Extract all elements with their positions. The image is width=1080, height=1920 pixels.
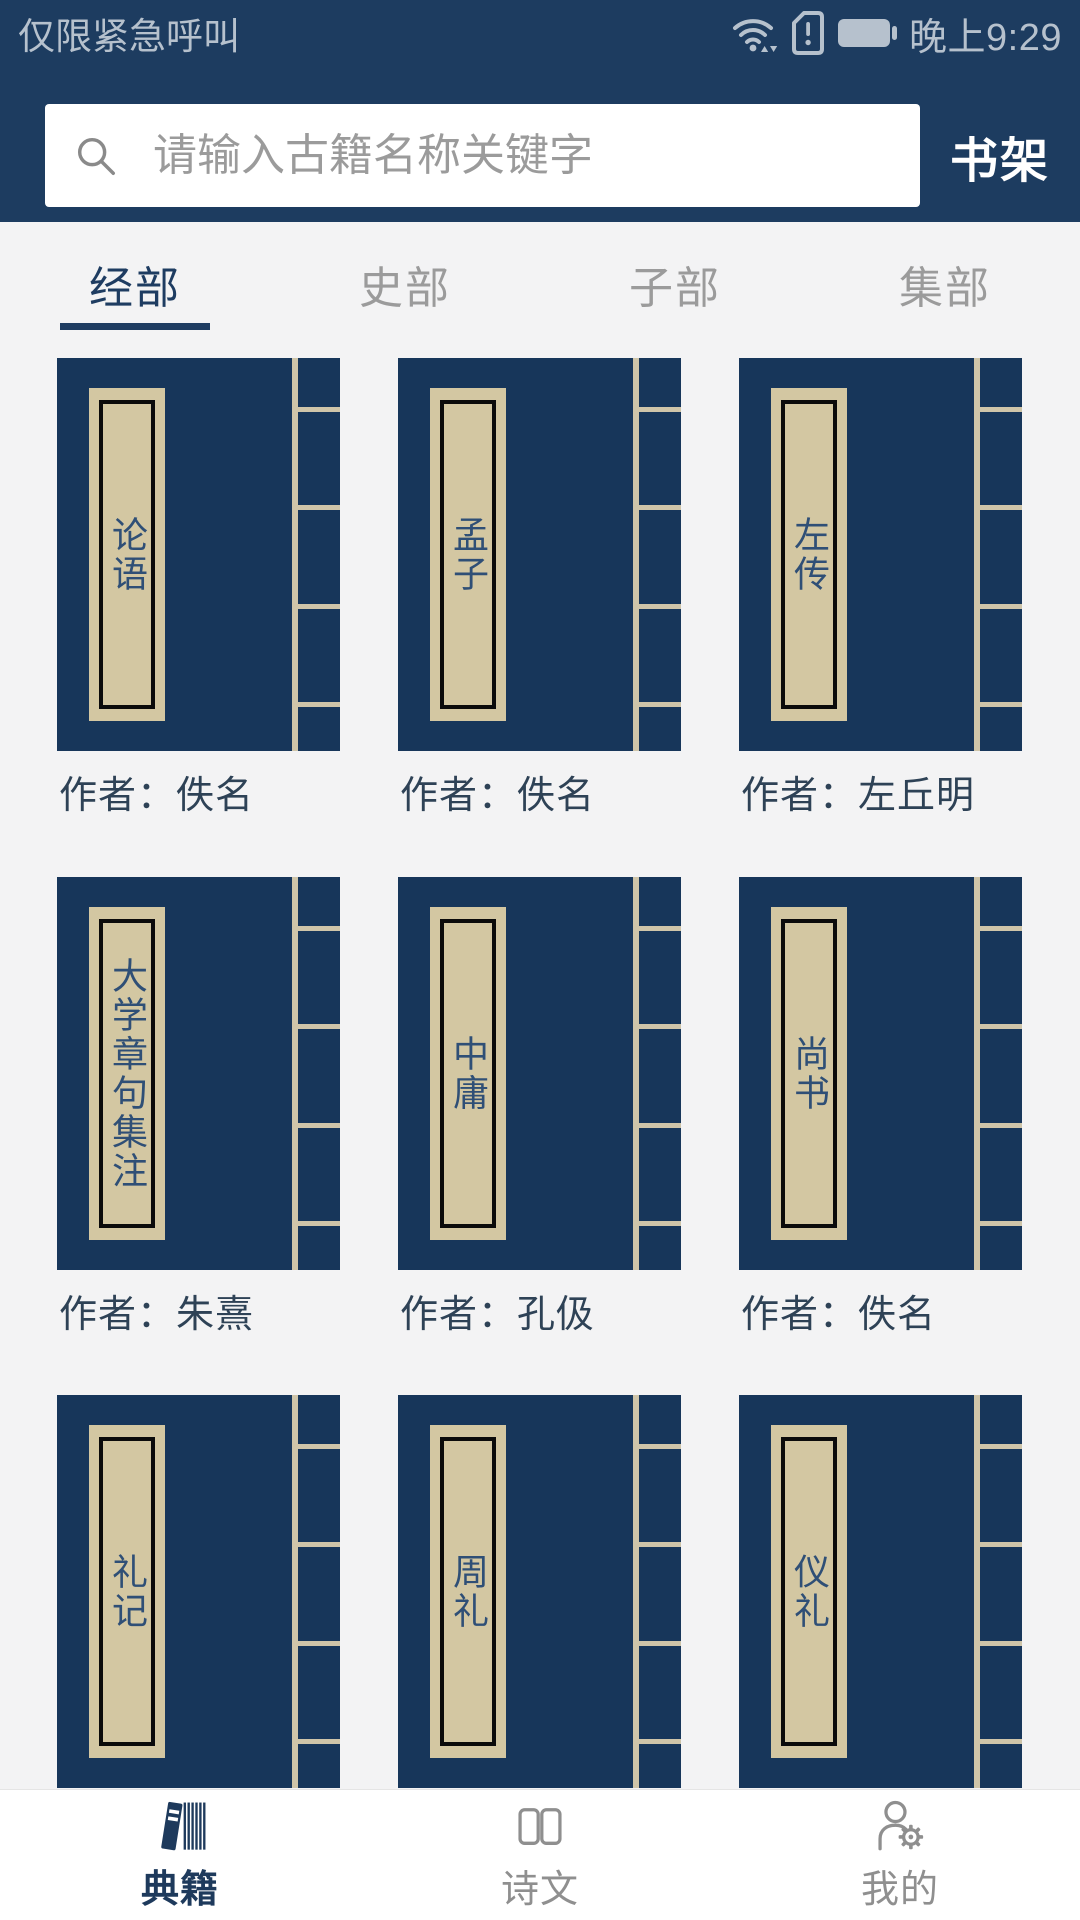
book-author: 作者：孔伋 bbox=[400, 1292, 681, 1338]
tab-label: 子部 bbox=[629, 252, 721, 316]
book-author: 作者：朱熹 bbox=[59, 1292, 340, 1338]
book-binding-decoration bbox=[292, 1395, 340, 1788]
book-cover[interactable]: 大学章句集注 bbox=[57, 877, 340, 1270]
book-cell: 周礼 bbox=[398, 1395, 681, 1788]
status-carrier-text: 仅限紧急呼叫 bbox=[18, 6, 240, 60]
books-icon bbox=[151, 1798, 209, 1856]
status-icons: 晚上9:29 bbox=[730, 6, 1062, 61]
book-binding-decoration bbox=[292, 358, 340, 751]
book-title: 仪礼 bbox=[791, 1553, 827, 1631]
book-title-label: 仪礼 bbox=[771, 1425, 847, 1758]
book-binding-decoration bbox=[292, 877, 340, 1270]
book-title: 大学章句集注 bbox=[109, 957, 145, 1191]
user-gear-icon bbox=[871, 1798, 929, 1856]
book-title: 论语 bbox=[109, 516, 145, 594]
book-cell: 尚书 作者：佚名 bbox=[739, 877, 1022, 1270]
book-title: 周礼 bbox=[450, 1553, 486, 1631]
book-title-label: 左传 bbox=[771, 388, 847, 721]
tab-ji-bu[interactable]: 集部 bbox=[810, 222, 1080, 345]
book-cover[interactable]: 中庸 bbox=[398, 877, 681, 1270]
bottom-nav: 典籍 诗文 bbox=[0, 1790, 1080, 1920]
bookshelf-button[interactable]: 书架 bbox=[920, 104, 1080, 207]
book-title-label: 孟子 bbox=[430, 388, 506, 721]
book-cover[interactable]: 周礼 bbox=[398, 1395, 681, 1788]
status-time: 晚上9:29 bbox=[909, 6, 1062, 61]
nav-item-shiwen[interactable]: 诗文 bbox=[360, 1790, 720, 1920]
book-binding-decoration bbox=[633, 877, 681, 1270]
book-cell: 大学章句集注 作者：朱熹 bbox=[57, 877, 340, 1270]
tab-zi-bu[interactable]: 子部 bbox=[540, 222, 810, 345]
nav-label: 我的 bbox=[861, 1858, 939, 1913]
book-title: 礼记 bbox=[109, 1553, 145, 1631]
app-screen: 仅限紧急呼叫 bbox=[0, 0, 1080, 1920]
book-author: 作者：左丘明 bbox=[741, 773, 1022, 819]
book-binding-decoration bbox=[633, 358, 681, 751]
nav-label: 诗文 bbox=[501, 1858, 579, 1913]
book-cover[interactable]: 论语 bbox=[57, 358, 340, 751]
book-cell: 孟子 作者：佚名 bbox=[398, 358, 681, 751]
search-input[interactable] bbox=[151, 130, 900, 182]
book-cell: 左传 作者：左丘明 bbox=[739, 358, 1022, 751]
book-cover[interactable]: 礼记 bbox=[57, 1395, 340, 1788]
book-cover[interactable]: 尚书 bbox=[739, 877, 1022, 1270]
battery-icon bbox=[836, 9, 900, 57]
tab-label: 史部 bbox=[359, 252, 451, 316]
wifi-icon bbox=[730, 10, 780, 56]
sim-alert-icon bbox=[789, 9, 827, 57]
book-cell: 礼记 bbox=[57, 1395, 340, 1788]
book-title-label: 中庸 bbox=[430, 907, 506, 1240]
tab-label: 集部 bbox=[899, 252, 991, 316]
book-title-label: 论语 bbox=[89, 388, 165, 721]
book-binding-decoration bbox=[974, 358, 1022, 751]
nav-item-dianji[interactable]: 典籍 bbox=[0, 1790, 360, 1920]
book-author: 作者：佚名 bbox=[400, 773, 681, 819]
status-bar: 仅限紧急呼叫 bbox=[0, 0, 1080, 60]
book-binding-decoration bbox=[974, 877, 1022, 1270]
app-header: 仅限紧急呼叫 bbox=[0, 0, 1080, 222]
book-title-label: 礼记 bbox=[89, 1425, 165, 1758]
book-cell: 论语 作者：佚名 bbox=[57, 358, 340, 751]
book-author: 作者：佚名 bbox=[741, 1292, 1022, 1338]
book-binding-decoration bbox=[633, 1395, 681, 1788]
nav-label: 典籍 bbox=[141, 1858, 219, 1913]
book-cell: 中庸 作者：孔伋 bbox=[398, 877, 681, 1270]
book-author: 作者：佚名 bbox=[59, 773, 340, 819]
open-book-icon bbox=[511, 1798, 569, 1856]
book-title-label: 周礼 bbox=[430, 1425, 506, 1758]
book-title: 中庸 bbox=[450, 1035, 486, 1113]
book-cover[interactable]: 孟子 bbox=[398, 358, 681, 751]
book-binding-decoration bbox=[974, 1395, 1022, 1788]
book-cover[interactable]: 左传 bbox=[739, 358, 1022, 751]
search-icon bbox=[73, 133, 119, 179]
category-tabs: 经部 史部 子部 集部 bbox=[0, 222, 1080, 345]
tab-label: 经部 bbox=[89, 252, 181, 316]
book-cell: 仪礼 bbox=[739, 1395, 1022, 1788]
book-title: 尚书 bbox=[791, 1035, 827, 1113]
book-title-label: 尚书 bbox=[771, 907, 847, 1240]
nav-item-wode[interactable]: 我的 bbox=[720, 1790, 1080, 1920]
book-title: 左传 bbox=[791, 516, 827, 594]
book-cover[interactable]: 仪礼 bbox=[739, 1395, 1022, 1788]
book-title-label: 大学章句集注 bbox=[89, 907, 165, 1240]
book-title: 孟子 bbox=[450, 516, 486, 594]
search-bar[interactable] bbox=[45, 104, 920, 207]
tab-jing-bu[interactable]: 经部 bbox=[0, 222, 270, 345]
tab-shi-bu[interactable]: 史部 bbox=[270, 222, 540, 345]
